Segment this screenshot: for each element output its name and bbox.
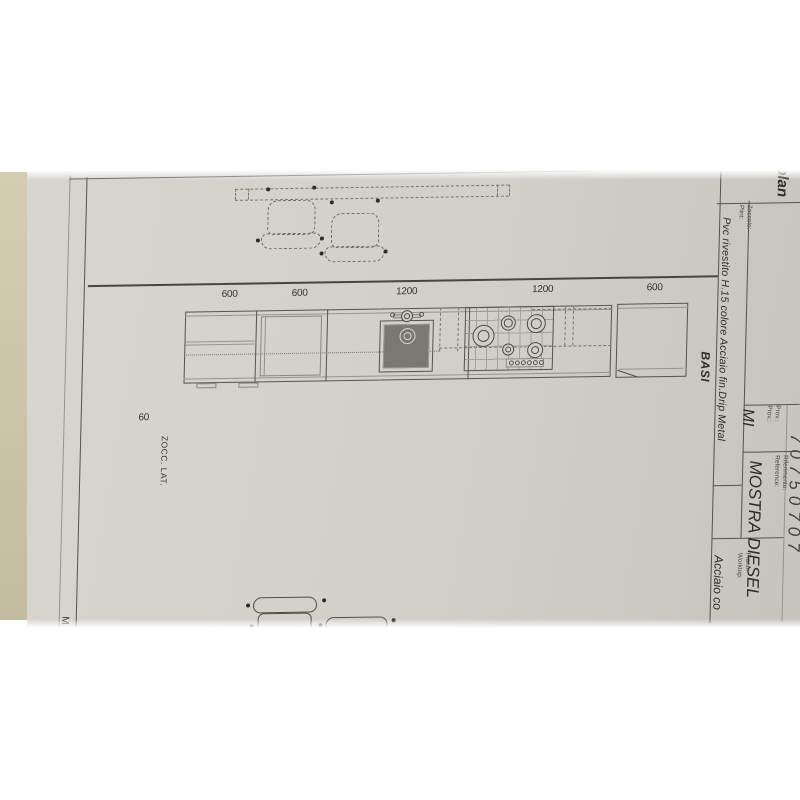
chair-seat-dashed: [267, 200, 316, 236]
paper-edge-line: [59, 175, 71, 627]
chair-leg-dot: [312, 186, 316, 190]
dim-label: 1200: [396, 286, 417, 297]
chair-leg-dot: [322, 598, 326, 602]
riferimento-label-en: Reference:: [773, 455, 781, 487]
prov-label-en: Prov.:: [765, 405, 772, 422]
chair-backrest-dashed: [324, 246, 384, 263]
table-end-dashed: [235, 189, 236, 200]
chair-leg-dot: [256, 238, 260, 242]
chair-backrest-dashed: [261, 233, 321, 250]
prov-label-it: Prov.:: [774, 405, 781, 422]
plinth-side-dim: 60: [138, 412, 149, 423]
chair-leg-dot: [266, 187, 270, 191]
zoccolo-label-it: Zoccolo:: [745, 205, 753, 230]
piano-labels: Piano: Worktop:: [734, 553, 751, 579]
chair-leg-dot: [330, 200, 334, 204]
chair-leg-dot: [246, 603, 250, 607]
sheet-content: M 600 600 1200 1200 600: [27, 170, 800, 628]
titleblock-cell-line: [717, 202, 800, 204]
table-end-dashed: [509, 185, 510, 196]
zoccolo-labels: Zoccolo: Plint:: [736, 205, 753, 230]
paper-sheet: M 600 600 1200 1200 600: [27, 170, 800, 628]
chair-leg-dot: [320, 236, 324, 240]
plinth-foot-mark: [238, 382, 258, 387]
zoccolo-label-en: Plint:: [737, 205, 744, 220]
table-surface-strip: [0, 172, 27, 620]
prov-labels: Prov.: Prov.:: [764, 405, 781, 422]
plinth-side-label: ZOCC. LAT.: [158, 436, 170, 486]
piano-label-en: Worktop:: [736, 553, 744, 579]
detached-cabinet: [615, 303, 688, 378]
zoccolo-value: Pvc rivestito H.15 colore Acciaio fin.Dr…: [715, 217, 731, 441]
chair-leg-dot: [376, 199, 380, 203]
dim-label: 600: [647, 282, 663, 293]
photo-overexposure-top: [27, 170, 800, 180]
table-tick-dashed: [248, 189, 249, 200]
piano-label-it: Piano:: [744, 553, 751, 572]
dim-label: 600: [222, 289, 238, 300]
titleblock-cell-line: [713, 485, 742, 486]
edge-number: 70750707: [784, 434, 800, 558]
chair-backrest: [253, 596, 317, 613]
sheet-border-left: [75, 177, 87, 628]
chair-leg-dot: [384, 249, 388, 253]
chair-leg-dot: [320, 251, 324, 255]
table-edge-dashed: [235, 185, 509, 190]
plinth-foot-mark: [196, 383, 216, 388]
photo-overexposure-bottom: [27, 619, 800, 628]
basi-label: BASI: [698, 351, 711, 382]
chair-seat-dashed: [331, 213, 380, 249]
dim-label: 600: [292, 288, 308, 299]
piano-value: Acciaio co: [711, 555, 725, 610]
cabinet-door-outline: [260, 315, 322, 376]
dim-label: 1200: [532, 284, 553, 295]
prov-value: MI: [738, 409, 755, 427]
table-tick-dashed: [497, 185, 498, 196]
